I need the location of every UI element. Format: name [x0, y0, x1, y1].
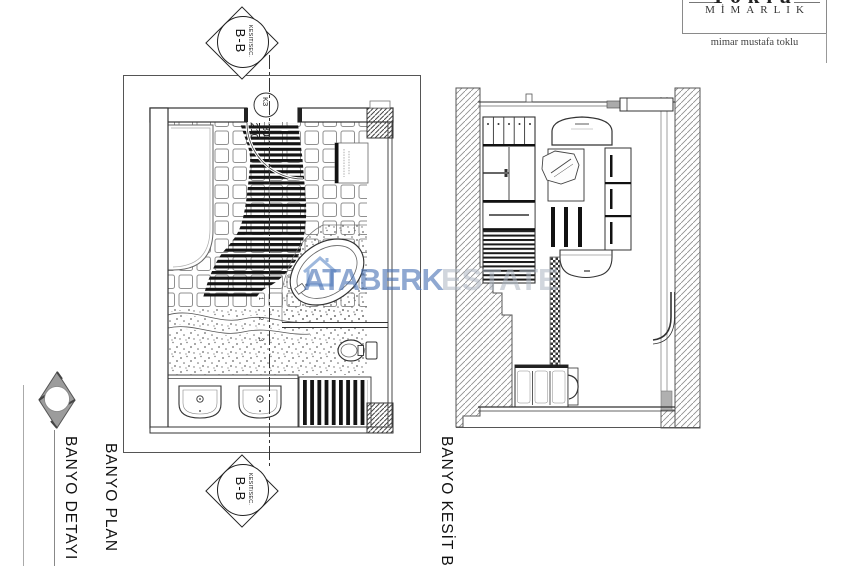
- plan-title: BANYO PLAN: [101, 443, 119, 552]
- dim-mark-2: 2: [257, 317, 263, 320]
- door-leaf-curve: [653, 292, 671, 340]
- section-marker-big-text: B-B: [234, 29, 247, 54]
- left-border-line: [23, 385, 24, 566]
- striped-mat: [299, 377, 371, 428]
- right-cabinet: [605, 148, 631, 250]
- door-tag: K3: [261, 97, 270, 106]
- vanity-counter: [168, 375, 298, 428]
- shower-area: [168, 125, 213, 270]
- mirror: [542, 149, 584, 201]
- section-vanity: [515, 365, 578, 407]
- section-drawing: [453, 85, 703, 430]
- louver-panel: [483, 231, 535, 283]
- section-title: BANYO KESİT B-B: [437, 436, 455, 566]
- sink-right: [239, 386, 281, 418]
- detail-marker-line: [54, 430, 55, 566]
- door-frame-lines: [661, 97, 667, 391]
- drawing-sheet: KESIT/SEC. B-B KESIT/SEC. B-B K3 80 210 …: [0, 0, 850, 566]
- logo-tagline: mimar mustafa toklu: [682, 37, 827, 48]
- slat-bars: [551, 207, 582, 247]
- section-wall-right: [653, 88, 700, 428]
- wall-column-bottom-right: [367, 403, 393, 433]
- detail-marker: [36, 368, 78, 432]
- ceiling-fitting: [526, 94, 532, 102]
- logo-edge-line: [826, 33, 827, 63]
- section-basin: [560, 250, 612, 278]
- ceiling: [478, 94, 675, 111]
- detail-title: BANYO DETAYI: [61, 436, 79, 560]
- tall-cabinet: [483, 117, 535, 283]
- dim-mark-1: 1: [257, 297, 263, 300]
- toilet: [338, 340, 377, 361]
- section-marker-top-label: KESIT/SEC. B-B: [229, 17, 257, 65]
- sink-left: [179, 386, 221, 418]
- wall-column-top-right: [367, 108, 393, 138]
- plan-drawing: [123, 75, 421, 453]
- dim-mark-3: 3: [257, 338, 263, 341]
- door-jamb-right: [298, 108, 302, 122]
- logo-box: Toklu MİMARLIK: [682, 0, 827, 34]
- door-width: 80: [259, 123, 271, 138]
- door-size-label: 80 210: [249, 114, 271, 148]
- door-height: 210: [248, 123, 259, 140]
- duct: [370, 101, 390, 108]
- light-fixture: [620, 98, 673, 111]
- section-marker-bottom-label: KESIT/SEC. B-B: [229, 465, 257, 513]
- door-jamb-left: [244, 108, 248, 122]
- radiator-label-box: [335, 143, 368, 183]
- logo-firm: MİMARLIK: [683, 4, 826, 16]
- arch-panel: [552, 117, 612, 145]
